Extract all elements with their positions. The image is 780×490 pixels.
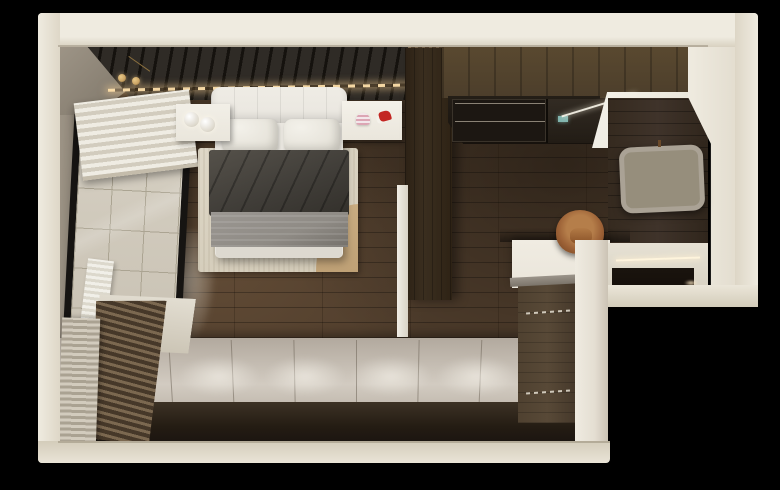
pane-grid <box>624 149 700 208</box>
cabinet-handle <box>526 309 570 314</box>
wall-column <box>575 240 608 443</box>
pillow <box>284 119 340 153</box>
window-latch <box>658 140 661 147</box>
pillow <box>222 119 278 153</box>
pendant-lights <box>112 62 152 88</box>
sphere-lamp <box>200 117 215 132</box>
wall-cut-notch <box>608 285 758 307</box>
pendant-light-icon <box>132 77 140 85</box>
duvet <box>209 150 349 216</box>
light-pool <box>178 356 260 396</box>
light-pool <box>264 356 346 396</box>
wall-inner-edge <box>58 441 610 443</box>
sheet-edge <box>216 247 342 258</box>
grid-window <box>619 144 706 214</box>
mug-rack <box>452 99 546 142</box>
blanket <box>211 212 348 247</box>
rack-rail <box>455 121 545 122</box>
wall-cut-right <box>735 13 758 307</box>
kitchen-base-cabinet <box>518 283 577 423</box>
kitchen-upper-cabinets <box>442 45 704 98</box>
pendant-light-icon <box>118 74 126 82</box>
wall-cut-top <box>38 13 758 47</box>
wall-cut-left <box>38 13 60 463</box>
wall-cut-bottom <box>38 441 610 463</box>
cabinet-handle <box>526 389 570 394</box>
sphere-lamp <box>184 112 199 127</box>
pink-lamp <box>356 113 370 125</box>
render-canvas <box>0 0 780 490</box>
rack-rail <box>455 103 545 104</box>
light-pool <box>350 356 432 396</box>
nightstand-right <box>342 101 402 140</box>
light-pool <box>436 356 518 396</box>
wardrobe-door-edge <box>397 185 408 337</box>
headboard <box>211 87 347 123</box>
radiator <box>58 317 100 446</box>
wall-inner-edge <box>58 45 708 47</box>
